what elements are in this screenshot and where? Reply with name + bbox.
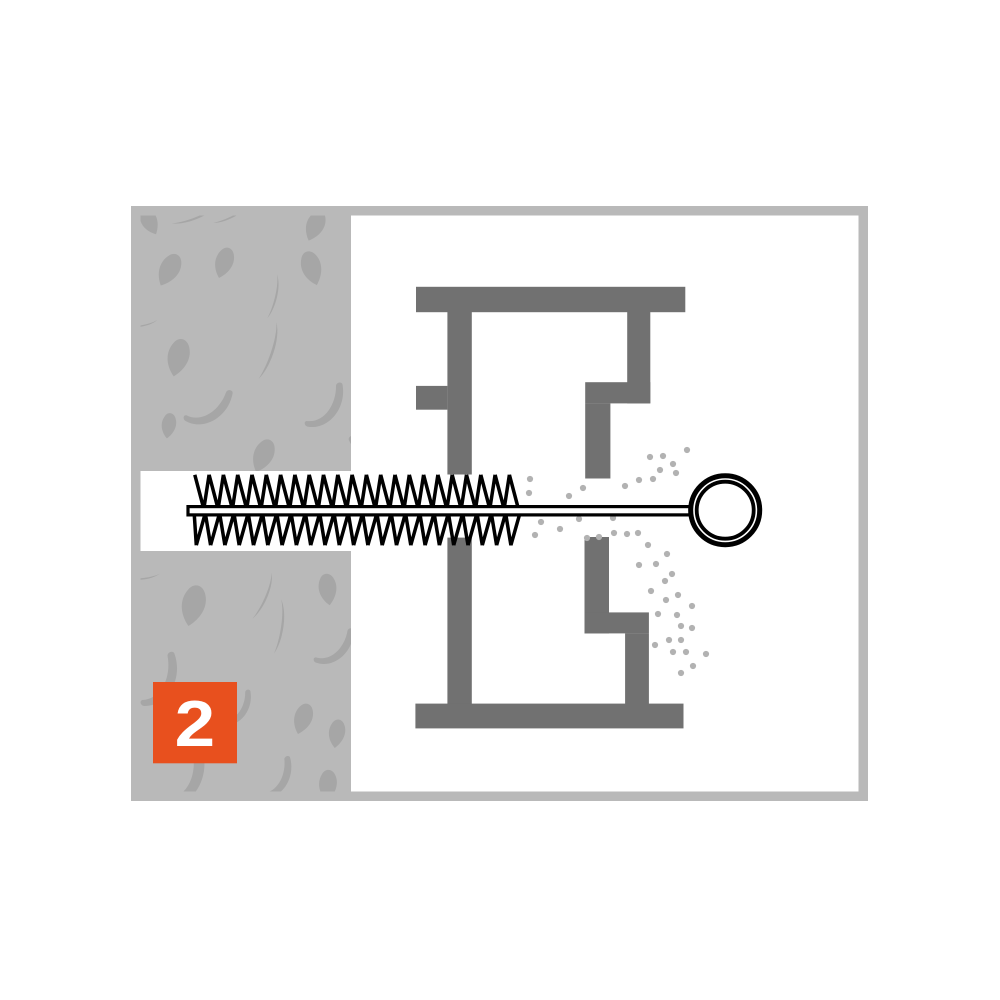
svg-text:2: 2 [175,687,216,760]
